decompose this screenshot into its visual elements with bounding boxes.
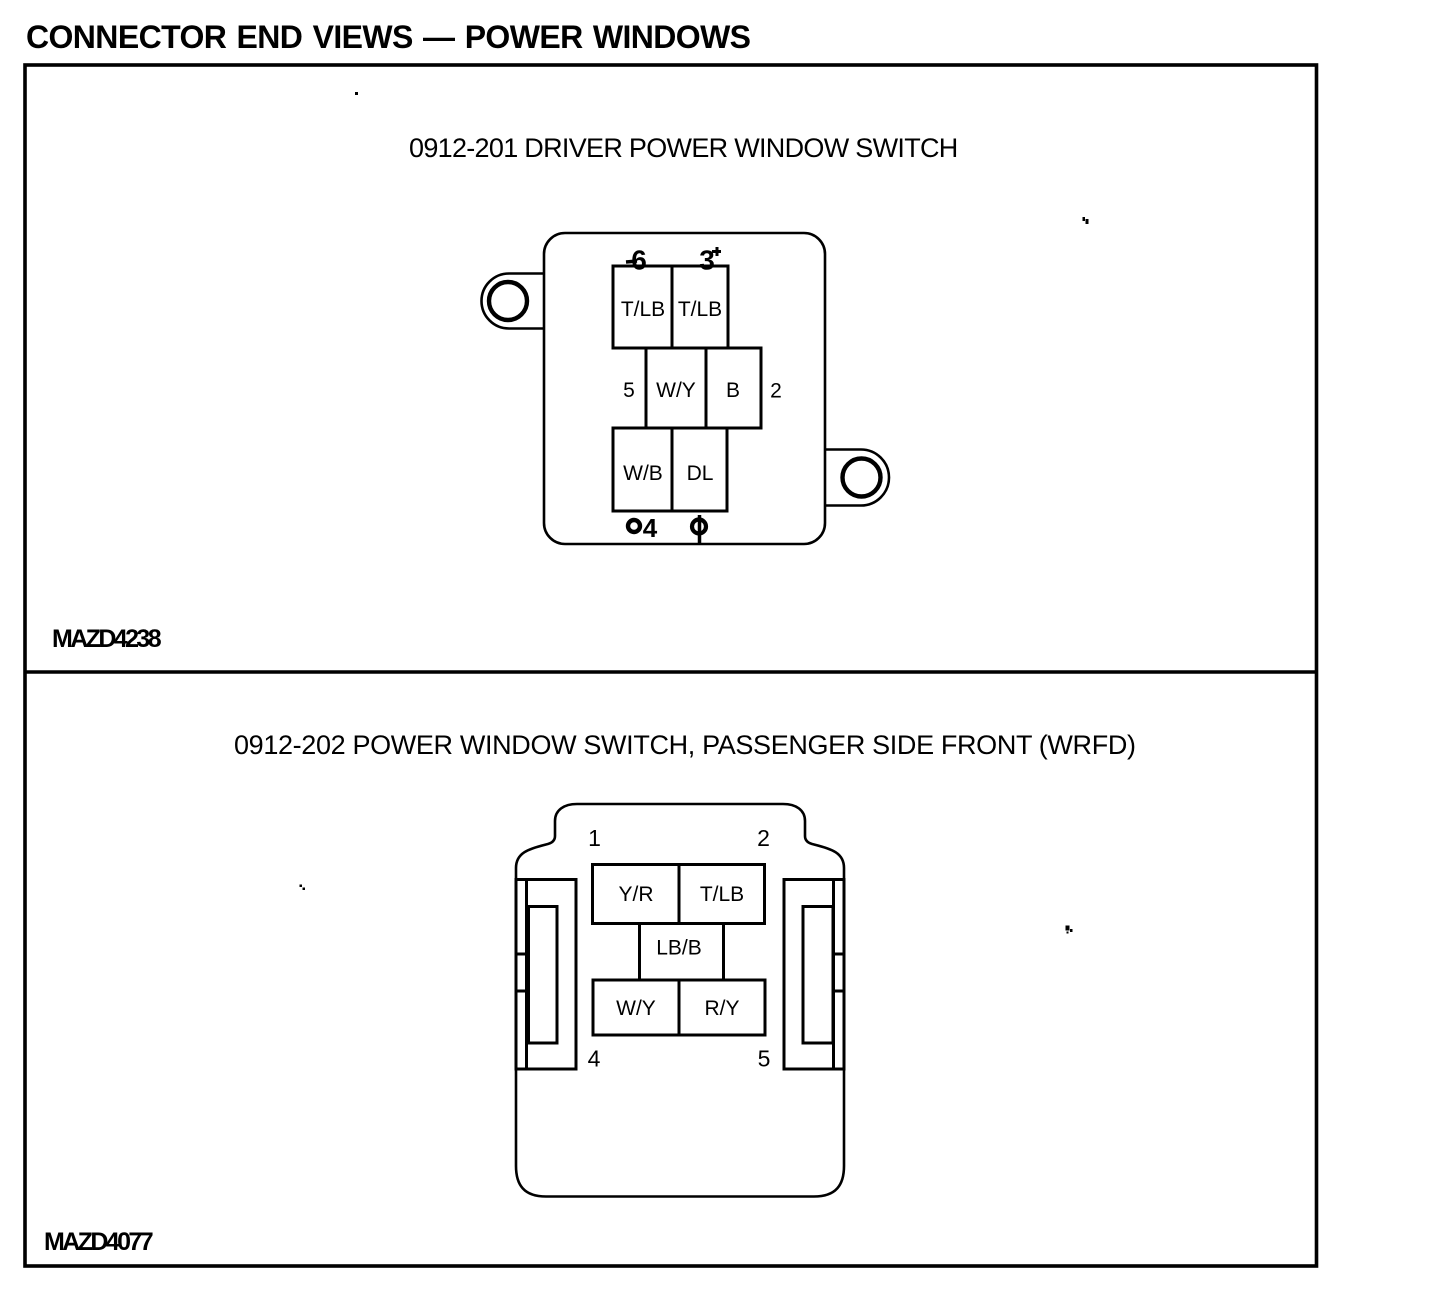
svg-text:T/LB: T/LB (700, 883, 744, 906)
svg-text:1: 1 (588, 825, 601, 851)
svg-text:T/LB: T/LB (621, 298, 665, 321)
svg-text:4: 4 (643, 513, 658, 543)
svg-text:R/Y: R/Y (704, 997, 739, 1020)
svg-text:5: 5 (758, 1046, 771, 1072)
svg-text:4: 4 (588, 1046, 601, 1072)
svg-text:DL: DL (687, 462, 714, 485)
svg-text:W/B: W/B (623, 462, 663, 485)
svg-text:3: 3 (699, 245, 715, 276)
svg-text:2: 2 (770, 380, 782, 403)
svg-text:B: B (726, 379, 740, 402)
svg-text:2: 2 (757, 825, 770, 851)
svg-text:Y/R: Y/R (618, 883, 653, 906)
svg-text:W/Y: W/Y (616, 997, 656, 1020)
svg-text:T/LB: T/LB (678, 298, 722, 321)
svg-text:LB/B: LB/B (656, 937, 702, 960)
svg-text:W/Y: W/Y (656, 379, 696, 402)
svg-text:5: 5 (623, 379, 635, 402)
